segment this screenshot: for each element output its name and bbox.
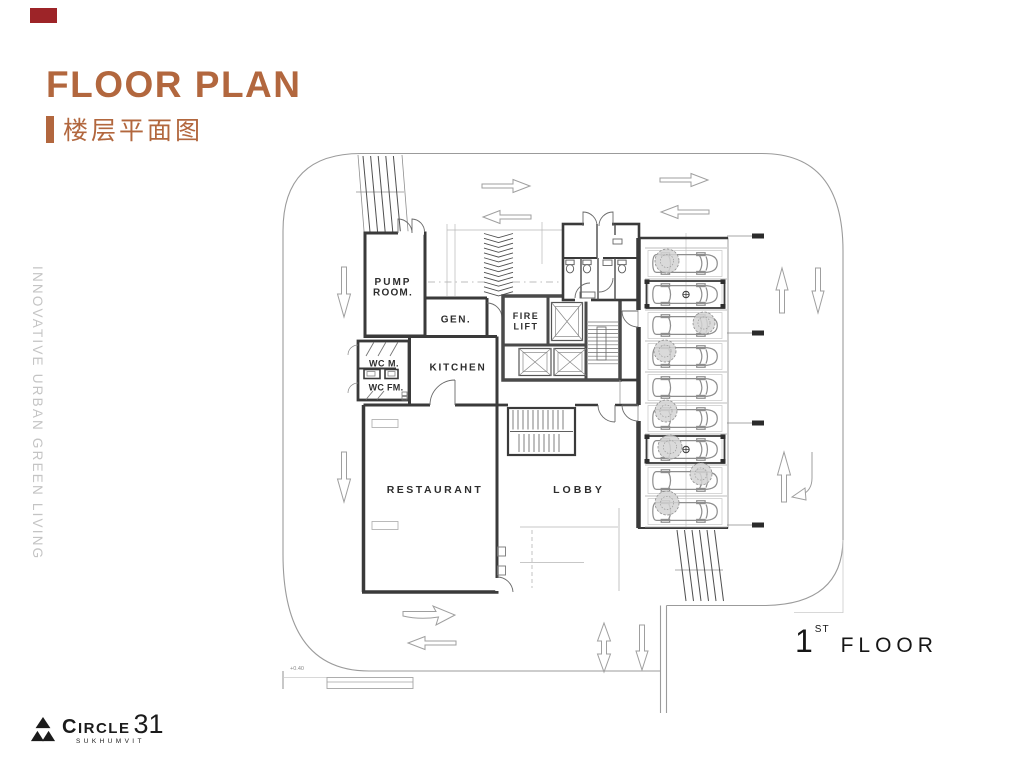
- logo-triangles-icon: [30, 715, 56, 745]
- logo-number: 31: [133, 712, 163, 736]
- floor-number: 1: [795, 627, 813, 656]
- label-level-note: +0.40: [290, 666, 304, 672]
- dimension-ticks: [727, 234, 764, 528]
- chevron-ramp-hatching: [484, 234, 513, 296]
- label-pump-room: PUMP: [375, 277, 412, 288]
- label-fire-lift: FIRE: [513, 311, 540, 321]
- floor-suffix: ST: [815, 624, 830, 635]
- parking-strip: [622, 233, 728, 530]
- label-gen: GEN.: [441, 315, 471, 326]
- label-kitchen: KITCHEN: [429, 363, 486, 374]
- slide-canvas: FLOOR PLAN 楼层平面图 INNOVATIVE URBAN GREEN …: [0, 0, 1024, 768]
- brand-logo: CIRCLE 31 SUKHUMVIT: [30, 712, 164, 745]
- floor-level-label: 1 ST FLOOR: [795, 627, 938, 656]
- exit-ramp-hatching: [677, 530, 724, 601]
- logo-brand-name: CIRCLE: [62, 716, 130, 739]
- label-fire-lift-2: LIFT: [514, 322, 539, 332]
- building-walls: [348, 212, 639, 592]
- logo-subbrand: SUKHUMVIT: [76, 738, 164, 745]
- label-pump-room-2: ROOM.: [373, 288, 413, 299]
- label-wc-m: WC M.: [369, 359, 399, 369]
- label-wc-fm: WC FM.: [369, 383, 404, 393]
- label-lobby: LOBBY: [553, 484, 605, 496]
- logo-text: CIRCLE 31 SUKHUMVIT: [62, 712, 164, 745]
- lobby-interior-lines: [520, 508, 619, 591]
- floor-word: FLOOR: [841, 635, 938, 656]
- label-restaurant: RESTAURANT: [387, 484, 484, 496]
